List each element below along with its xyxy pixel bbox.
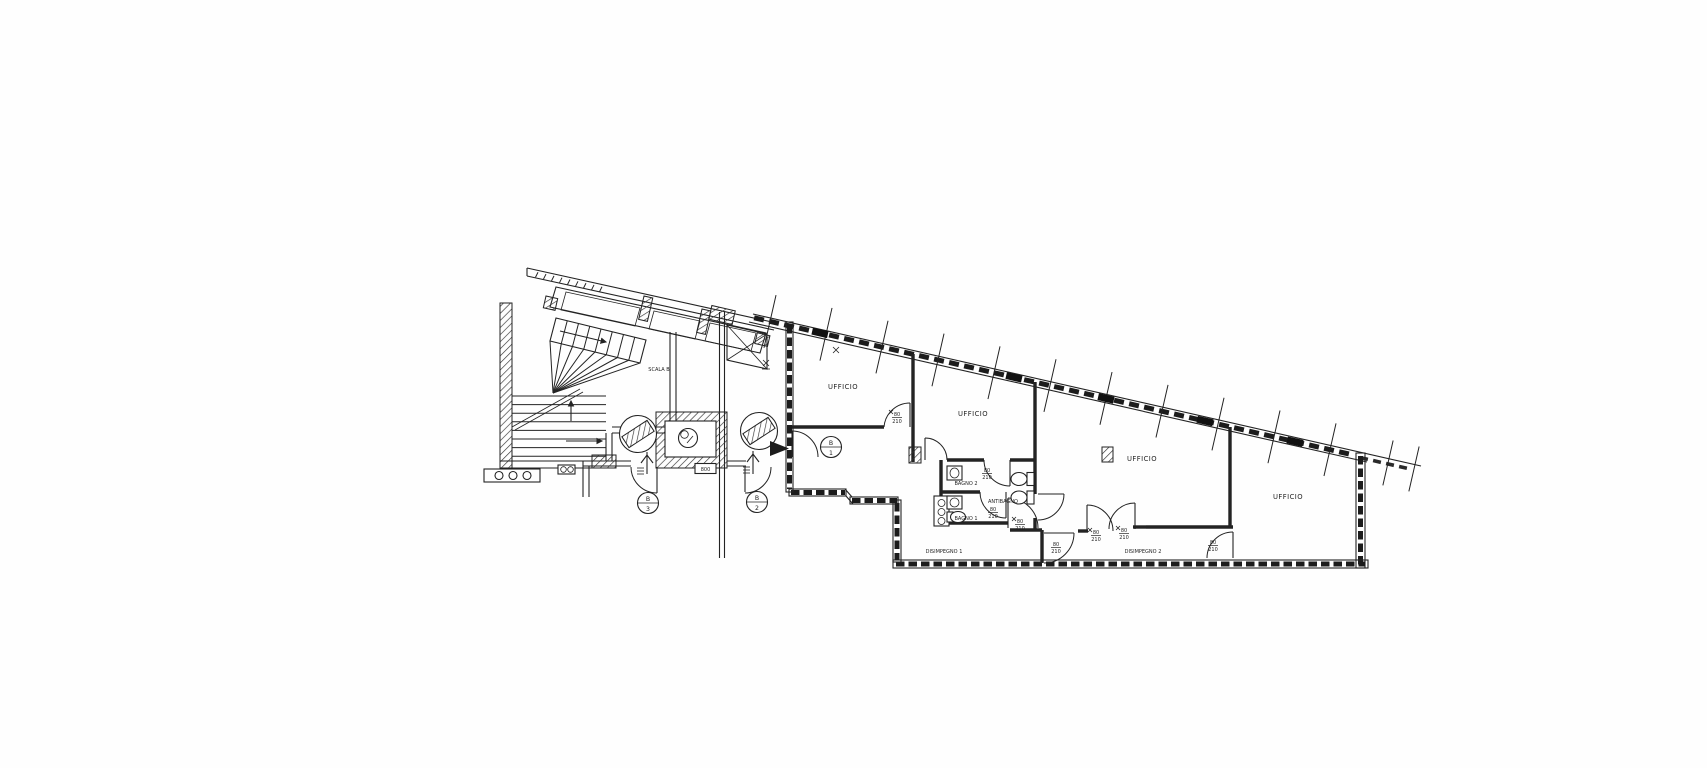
room-tag-b2: B 2 [747, 492, 768, 513]
door-size-label: 80 210 [982, 468, 992, 481]
svg-text:210: 210 [1015, 526, 1025, 532]
svg-text:80: 80 [1121, 528, 1127, 534]
interior-walls [792, 354, 1233, 563]
canopy-skylight [527, 268, 774, 353]
svg-text:210: 210 [1208, 547, 1218, 553]
svg-text:210: 210 [1119, 535, 1129, 541]
door-size-label: 80 210 [1208, 540, 1218, 553]
room-label-antibagno: ANTIBAGNO [988, 499, 1018, 505]
room-label-bagno-1: BAGNO 1 [954, 516, 977, 522]
room-label-ufficio-2: UFFICIO [958, 410, 988, 418]
svg-text:3: 3 [646, 506, 650, 513]
column-pier [1102, 447, 1113, 462]
elevator-icon: 800 [656, 412, 727, 474]
room-label-ufficio-3: UFFICIO [1127, 455, 1157, 463]
toilet-icon [1011, 473, 1034, 486]
svg-text:80: 80 [1093, 530, 1099, 536]
door-size-label: 80 210 [1116, 526, 1129, 541]
sink-icon [947, 496, 962, 509]
svg-text:80: 80 [1017, 519, 1023, 525]
elevator-size-label: 800 [701, 467, 711, 473]
svg-text:80: 80 [990, 507, 996, 513]
door-size-label: 80 210 [1088, 528, 1101, 543]
svg-text:210: 210 [988, 514, 998, 520]
svg-text:210: 210 [1051, 549, 1061, 555]
wall-pier [909, 447, 921, 463]
room-label-ufficio-4: UFFICIO [1273, 493, 1303, 501]
room-label-disimpegno-1: DISIMPEGNO 1 [926, 549, 963, 555]
door-size-label: 80 210 [988, 507, 998, 520]
facade-windows [754, 295, 1420, 491]
floor-plan-page: SCALA B 800 [0, 0, 1707, 768]
room-tag-b3: B 3 [638, 493, 659, 514]
room-tag-b1: B 1 [821, 437, 842, 458]
room-label-bagno-2: BAGNO 2 [954, 481, 977, 487]
svg-text:80: 80 [1210, 540, 1216, 546]
radiator-icon [484, 469, 540, 482]
door-size-label: 80 210 [889, 410, 902, 425]
stair-label: SCALA B [648, 367, 670, 373]
room-label-disimpegno-2: DISIMPEGNO 2 [1125, 549, 1162, 555]
room-label-ufficio-1: UFFICIO [828, 383, 858, 391]
svg-text:B: B [829, 440, 833, 447]
svg-text:2: 2 [755, 505, 759, 512]
svg-text:1: 1 [829, 450, 833, 457]
svg-text:210: 210 [892, 419, 902, 425]
fan-coil-icon [620, 416, 657, 453]
door-size-label: 80 210 [1051, 542, 1061, 555]
air-vent-icon [637, 452, 653, 474]
vent-mark-icon [762, 347, 839, 369]
svg-text:80: 80 [1053, 542, 1059, 548]
svg-text:80: 80 [894, 412, 900, 418]
perimeter-walls [786, 322, 1368, 568]
svg-text:B: B [755, 495, 759, 502]
svg-text:B: B [646, 496, 650, 503]
facade-window-wall [749, 295, 1421, 491]
sink-icon [947, 466, 962, 480]
floor-plan-drawing: SCALA B 800 [0, 0, 1707, 768]
svg-text:80: 80 [984, 468, 990, 474]
svg-text:210: 210 [982, 475, 992, 481]
svg-text:210: 210 [1091, 537, 1101, 543]
grille-icon [558, 465, 575, 474]
